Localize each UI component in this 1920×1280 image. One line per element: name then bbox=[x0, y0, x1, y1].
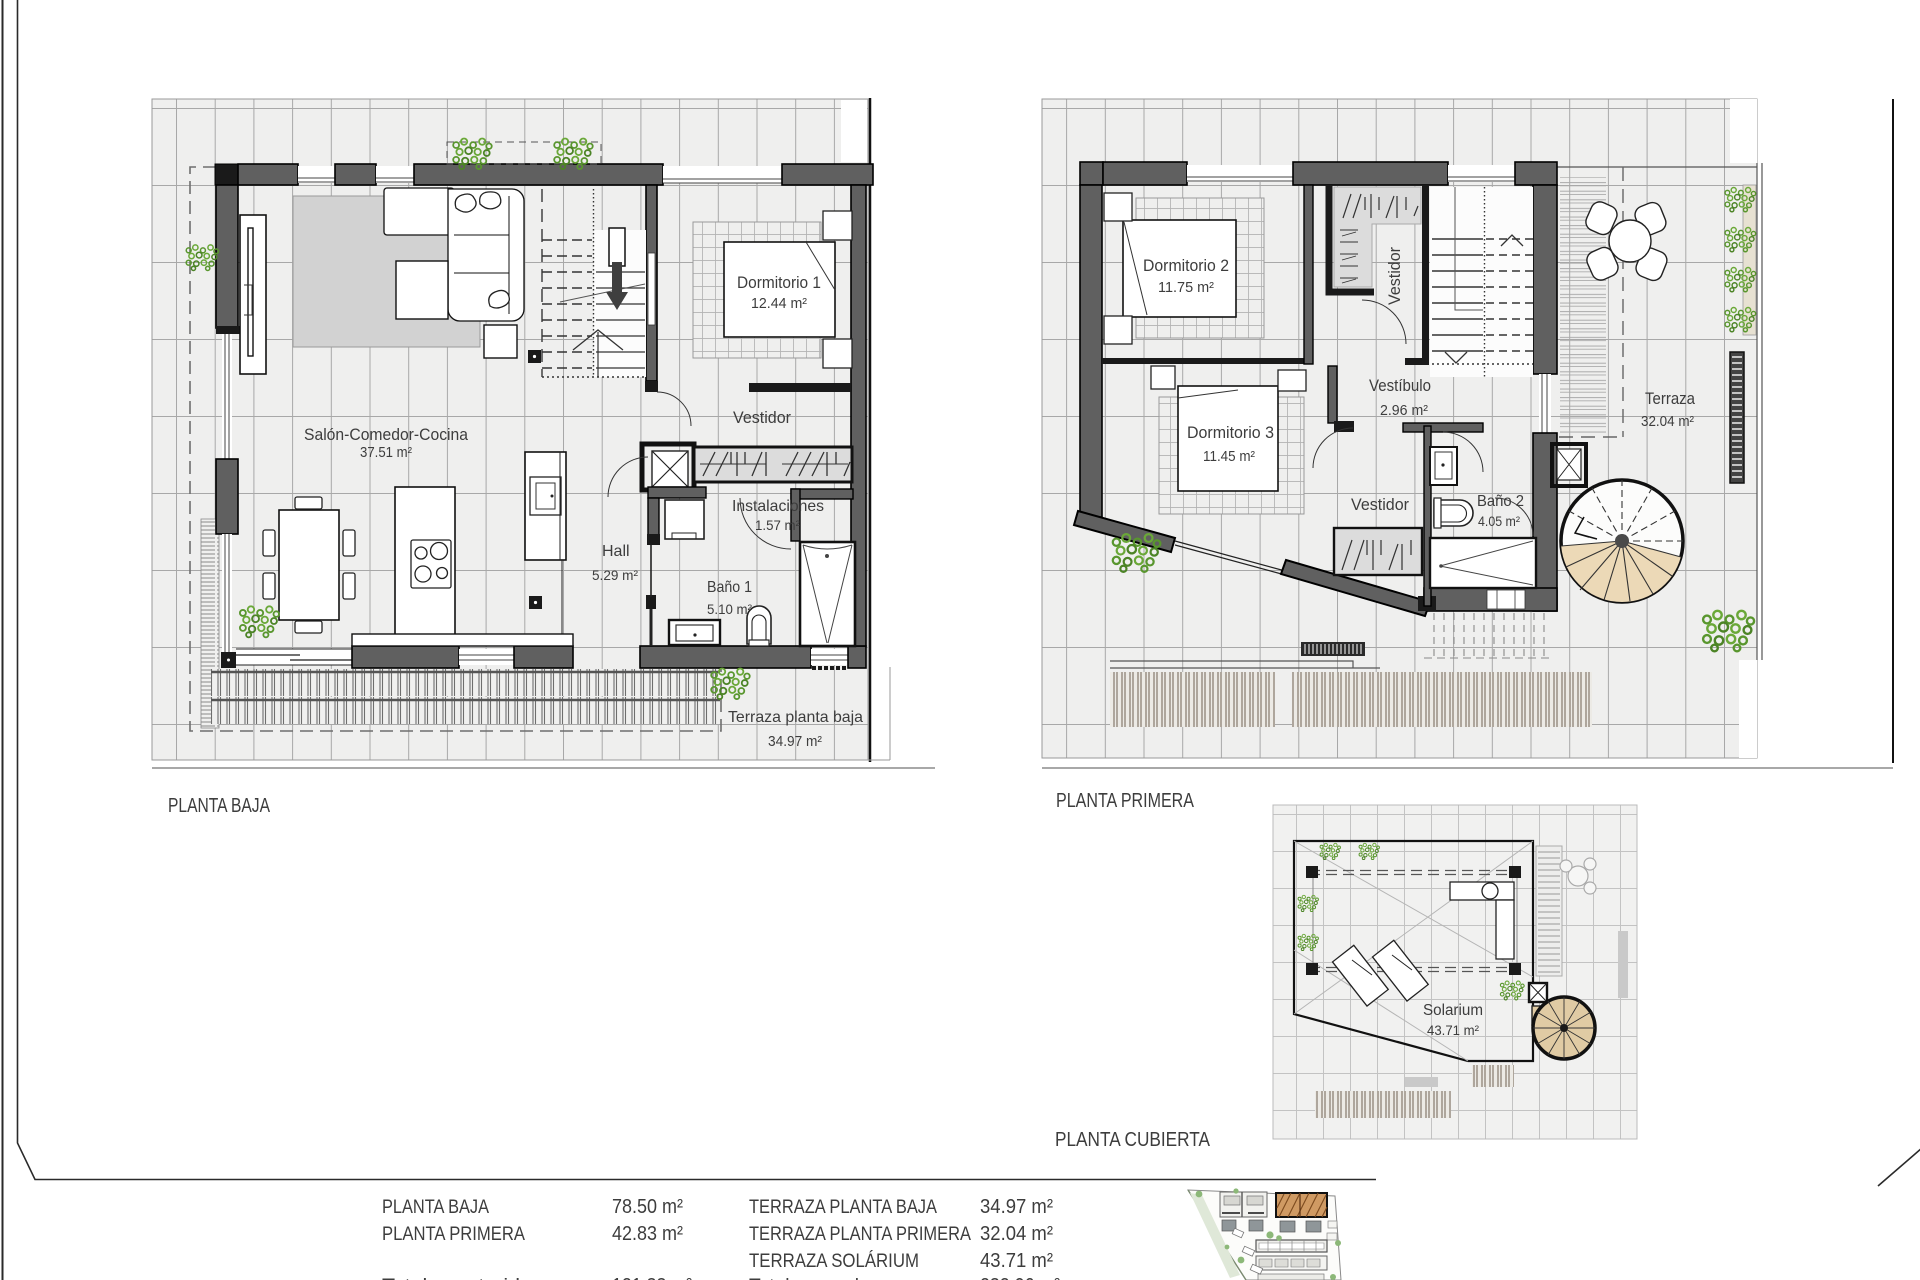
svg-text:Hall: Hall bbox=[602, 543, 630, 560]
svg-text:121.33 m²: 121.33 m² bbox=[612, 1274, 692, 1280]
svg-text:TERRAZA PLANTA PRIMERA: TERRAZA PLANTA PRIMERA bbox=[749, 1223, 971, 1245]
svg-text:34.97 m²: 34.97 m² bbox=[768, 734, 822, 750]
svg-text:Vestíbulo: Vestíbulo bbox=[1369, 377, 1431, 395]
svg-text:PLANTA PRIMERA: PLANTA PRIMERA bbox=[382, 1223, 525, 1245]
svg-text:PLANTA CUBIERTA: PLANTA CUBIERTA bbox=[1055, 1129, 1211, 1151]
svg-text:TERRAZA PLANTA BAJA: TERRAZA PLANTA BAJA bbox=[749, 1196, 937, 1218]
svg-text:Dormitorio 2: Dormitorio 2 bbox=[1143, 257, 1229, 275]
svg-text:PLANTA BAJA: PLANTA BAJA bbox=[382, 1196, 489, 1218]
svg-text:34.97 m²: 34.97 m² bbox=[980, 1195, 1053, 1218]
svg-text:11.45 m²: 11.45 m² bbox=[1203, 449, 1255, 465]
svg-text:78.50 m²: 78.50 m² bbox=[612, 1195, 683, 1218]
svg-text:Dormitorio 3: Dormitorio 3 bbox=[1187, 424, 1274, 442]
svg-text:PLANTA BAJA: PLANTA BAJA bbox=[168, 795, 271, 817]
svg-text:32.04 m²: 32.04 m² bbox=[980, 1222, 1053, 1245]
svg-text:Total construido: Total construido bbox=[382, 1275, 532, 1280]
svg-text:37.51 m²: 37.51 m² bbox=[360, 445, 412, 461]
svg-text:Solarium: Solarium bbox=[1423, 1002, 1483, 1019]
svg-text:5.29 m²: 5.29 m² bbox=[592, 567, 638, 583]
svg-text:1.57 m²: 1.57 m² bbox=[755, 517, 800, 533]
svg-text:5.10 m²: 5.10 m² bbox=[707, 601, 752, 617]
svg-text:Vestidor: Vestidor bbox=[1386, 247, 1404, 305]
svg-text:42.83 m²: 42.83 m² bbox=[612, 1222, 683, 1245]
svg-text:Salón-Comedor-Cocina: Salón-Comedor-Cocina bbox=[304, 426, 469, 444]
svg-text:Total general: Total general bbox=[749, 1275, 859, 1280]
svg-text:4.05 m²: 4.05 m² bbox=[1478, 513, 1520, 529]
svg-text:Baño 2: Baño 2 bbox=[1477, 493, 1524, 510]
svg-text:43.71 m²: 43.71 m² bbox=[1427, 1022, 1479, 1038]
svg-text:Instalaciones: Instalaciones bbox=[732, 498, 824, 515]
svg-text:11.75 m²: 11.75 m² bbox=[1158, 280, 1214, 296]
svg-text:232.06 m²: 232.06 m² bbox=[980, 1274, 1060, 1280]
svg-text:43.71 m²: 43.71 m² bbox=[980, 1249, 1053, 1272]
svg-text:Baño 1: Baño 1 bbox=[707, 579, 752, 596]
svg-text:TERRAZA SOLÁRIUM: TERRAZA SOLÁRIUM bbox=[749, 1249, 919, 1272]
svg-text:Dormitorio 1: Dormitorio 1 bbox=[737, 274, 821, 292]
svg-text:Vestidor: Vestidor bbox=[733, 409, 791, 427]
svg-text:Vestidor: Vestidor bbox=[1351, 496, 1409, 514]
svg-text:32.04 m²: 32.04 m² bbox=[1641, 414, 1694, 430]
svg-text:2.96 m²: 2.96 m² bbox=[1380, 403, 1428, 419]
svg-text:Terraza planta baja: Terraza planta baja bbox=[728, 709, 863, 726]
svg-text:Terraza: Terraza bbox=[1645, 390, 1696, 408]
svg-text:12.44 m²: 12.44 m² bbox=[751, 296, 807, 312]
svg-text:PLANTA PRIMERA: PLANTA PRIMERA bbox=[1056, 790, 1195, 812]
